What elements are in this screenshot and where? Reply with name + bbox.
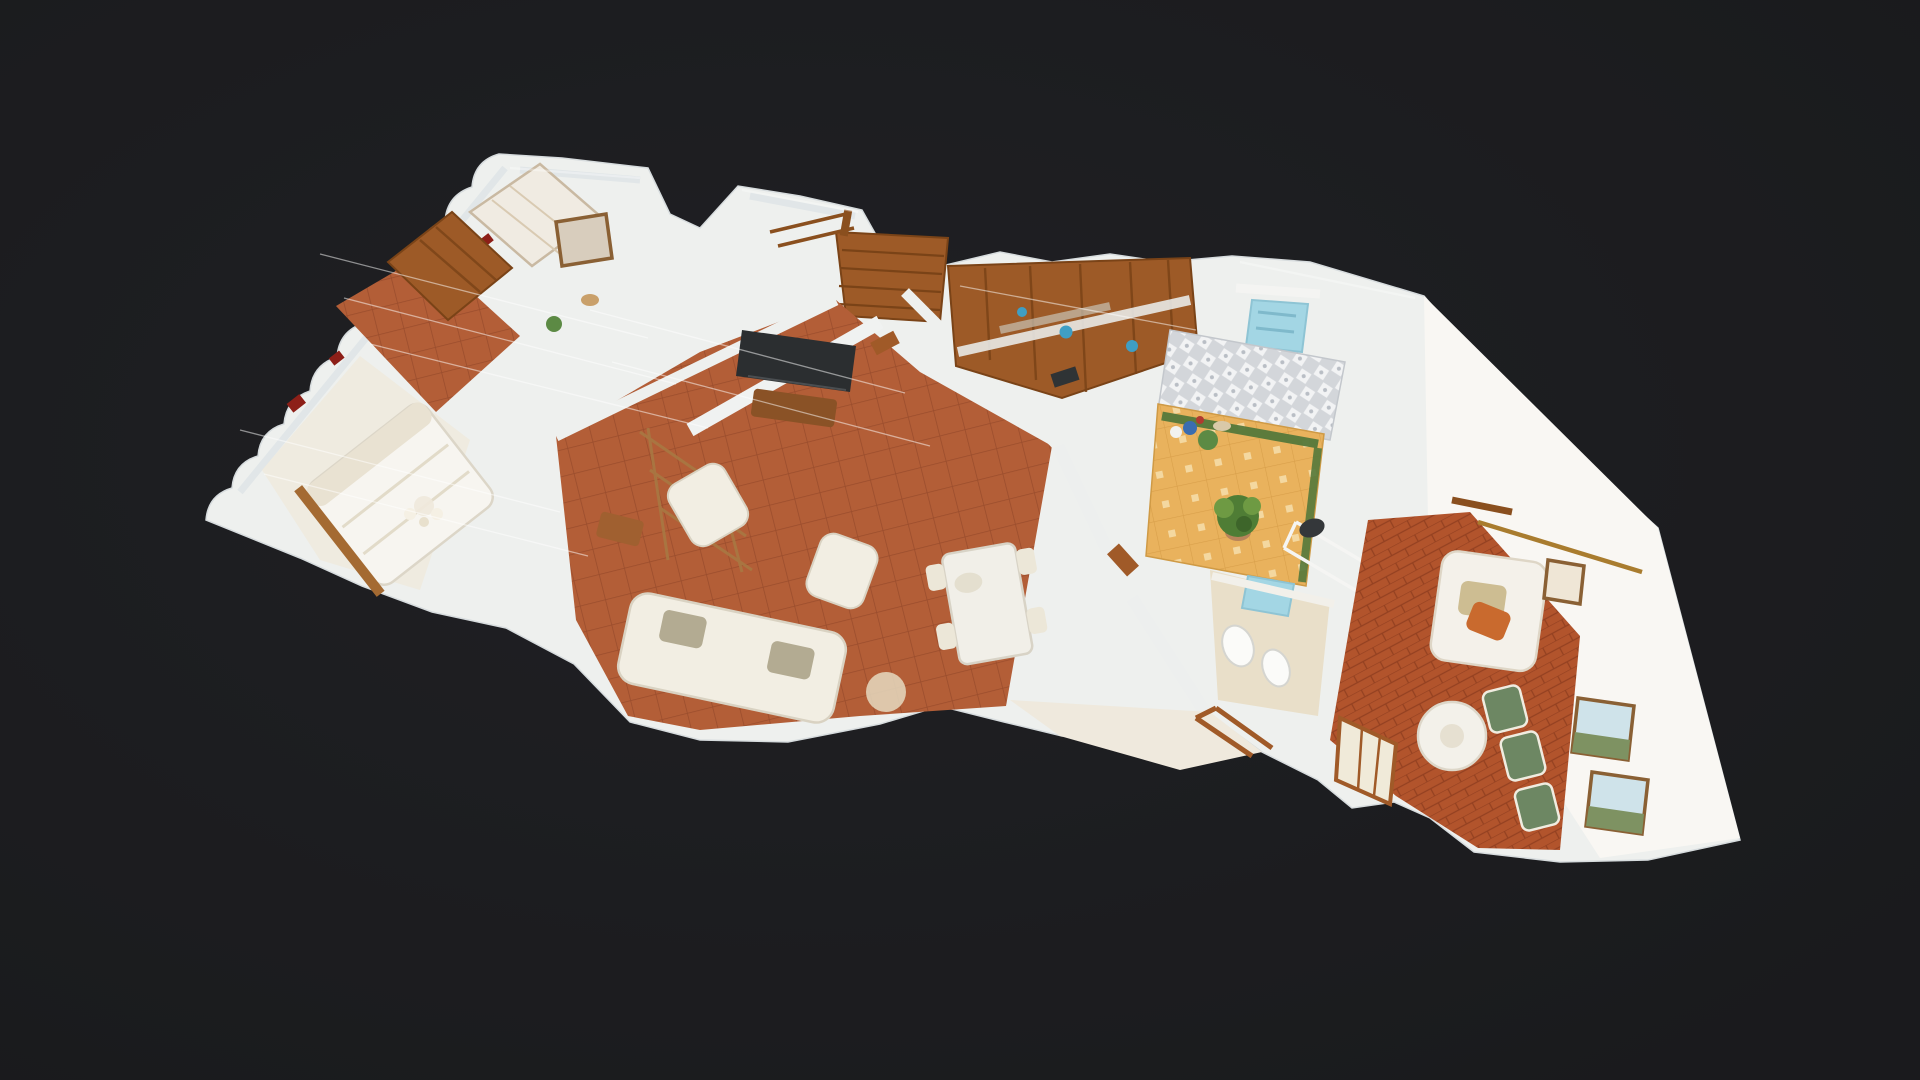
bath-cut-wall bbox=[1236, 288, 1320, 294]
dollhouse-3d-view[interactable] bbox=[0, 0, 1920, 1080]
kitchen-blue-item bbox=[1017, 307, 1027, 317]
bathroom-blue-floor bbox=[1246, 300, 1308, 352]
kitchen-blue-item bbox=[1126, 340, 1138, 352]
dollhouse-canvas[interactable] bbox=[0, 0, 1920, 1080]
small-plant bbox=[1198, 430, 1218, 450]
round-table-center bbox=[1440, 724, 1464, 748]
picture-frame-landscape-1 bbox=[1572, 698, 1634, 760]
kitchen-blue-item bbox=[1060, 326, 1073, 339]
picture-frame-hallway bbox=[556, 214, 612, 266]
rug bbox=[866, 672, 906, 712]
dresser-top bbox=[581, 294, 599, 306]
small-plant bbox=[546, 316, 562, 332]
picture-frame-landscape-2 bbox=[1586, 772, 1648, 834]
picture-frame-portrait bbox=[1544, 560, 1584, 604]
